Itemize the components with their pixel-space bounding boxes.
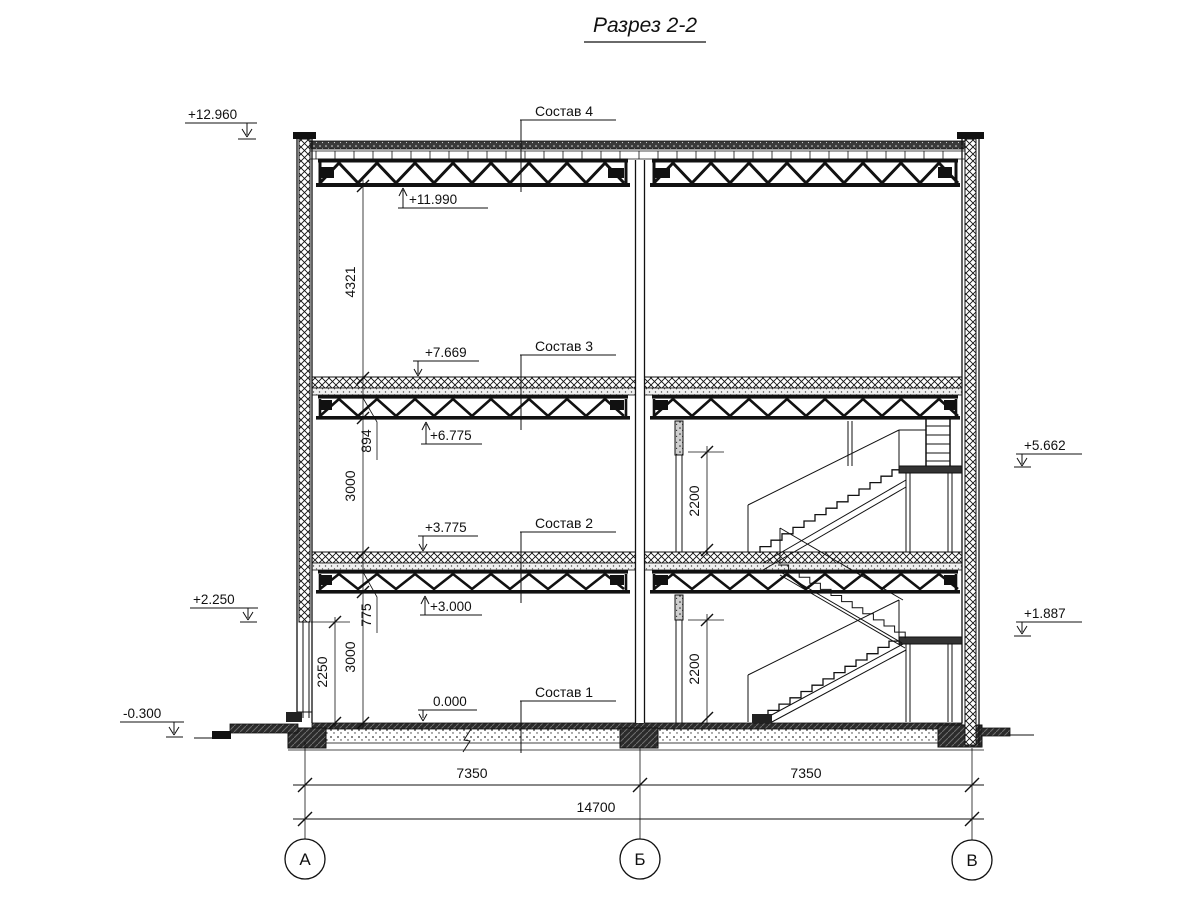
svg-text:Состав 3: Состав 3 [535, 338, 593, 354]
dim-attic-height: 4321 [342, 266, 358, 297]
svg-text:+3.775: +3.775 [425, 520, 467, 535]
elevation-ground-floor: 0.000 [418, 694, 477, 721]
dim-door-lower: 2200 [686, 653, 702, 684]
window-sill [286, 712, 302, 722]
dim-span-right: 7350 [790, 765, 821, 781]
svg-text:Б: Б [634, 850, 645, 869]
elevation-floor3-top: +7.669 [413, 345, 479, 376]
dim-story-upper: 3000 [342, 470, 358, 501]
elevation-upper-landing: +5.662 [1014, 438, 1082, 467]
elevation-floor2-top: +3.775 [418, 520, 478, 551]
lower-landing [899, 637, 962, 644]
column-axis-b [636, 160, 645, 723]
svg-text:Состав 1: Состав 1 [535, 684, 593, 700]
elevation-marks-internal: +11.990 +7.669 +6.775 +3.775 +3.000 0.00… [398, 188, 488, 721]
roof-access-ladder [926, 419, 950, 466]
upper-flight-steps [760, 470, 903, 553]
right-wall [957, 132, 984, 745]
dim-span-total: 14700 [577, 799, 616, 815]
lower-flight-handrail [748, 600, 899, 722]
svg-text:Состав 4: Состав 4 [535, 103, 593, 119]
elevation-parapet-top: +12.960 [185, 107, 257, 139]
axis-circle-a: А [285, 839, 325, 879]
dimension-chain-left: 4321 894 3000 775 3000 2250 [311, 180, 377, 729]
svg-text:А: А [299, 850, 311, 869]
axis-markers: А Б В [285, 839, 992, 880]
elevation-site-level: -0.300 [120, 706, 184, 737]
svg-text:+3.000: +3.000 [430, 599, 472, 614]
elevation-truss2-bottom: +3.000 [420, 596, 482, 615]
elevation-lower-landing: +1.887 [1014, 606, 1082, 636]
elevation-marks-left: +12.960 +2.250 -0.300 [120, 107, 258, 737]
svg-text:Состав 2: Состав 2 [535, 515, 593, 531]
ground-slab [194, 723, 1034, 752]
dim-floor-depth: 775 [358, 603, 374, 627]
flight-base-support [752, 714, 772, 723]
dimension-bottom: 7350 7350 14700 [293, 742, 984, 840]
left-wall [286, 132, 316, 723]
svg-text:+5.662: +5.662 [1024, 438, 1066, 453]
blind-area-left [194, 724, 298, 739]
svg-text:+1.887: +1.887 [1024, 606, 1066, 621]
axis-circle-b: Б [620, 839, 660, 879]
svg-text:-0.300: -0.300 [123, 706, 161, 721]
section-drawing: 4321 894 3000 775 3000 2250 2200 2200 [0, 0, 1200, 900]
svg-text:+11.990: +11.990 [409, 192, 457, 207]
left-parapet-cap [293, 132, 316, 139]
svg-text:0.000: 0.000 [433, 694, 467, 709]
drawing-title-group: Разрез 2-2 [584, 14, 706, 42]
elevation-truss3-bottom: +6.775 [421, 422, 482, 444]
elevation-window-head: +2.250 [190, 592, 258, 622]
floor-composition-labels: Состав 4 Состав 3 Состав 2 Состав 1 [520, 103, 616, 753]
upper-landing [899, 466, 962, 473]
left-window [286, 622, 312, 722]
blind-area-right [981, 728, 1034, 736]
dim-door-upper: 2200 [686, 485, 702, 516]
svg-text:+12.960: +12.960 [188, 107, 237, 122]
drawing-title: Разрез 2-2 [593, 14, 697, 37]
right-parapet-cap [957, 132, 984, 139]
svg-text:+2.250: +2.250 [193, 592, 235, 607]
drawing-page: { "title": "Разрез 2-2", "floor_labels":… [0, 0, 1200, 900]
svg-text:В: В [966, 851, 977, 870]
dim-window-height: 2250 [314, 656, 330, 687]
elevation-marks-right: +5.662 +1.887 [1014, 438, 1082, 636]
footing-center [620, 728, 658, 748]
dim-roof-slab-depth: 894 [358, 429, 374, 453]
dim-span-left: 7350 [456, 765, 487, 781]
dim-story-lower: 3000 [342, 641, 358, 672]
return-flight-steps [778, 565, 905, 638]
dimension-door-openings: 2200 2200 [686, 446, 724, 724]
svg-text:+7.669: +7.669 [425, 345, 467, 360]
axis-circle-v: В [952, 840, 992, 880]
elevation-roof-truss-bottom: +11.990 [398, 188, 488, 208]
svg-text:+6.775: +6.775 [430, 428, 472, 443]
